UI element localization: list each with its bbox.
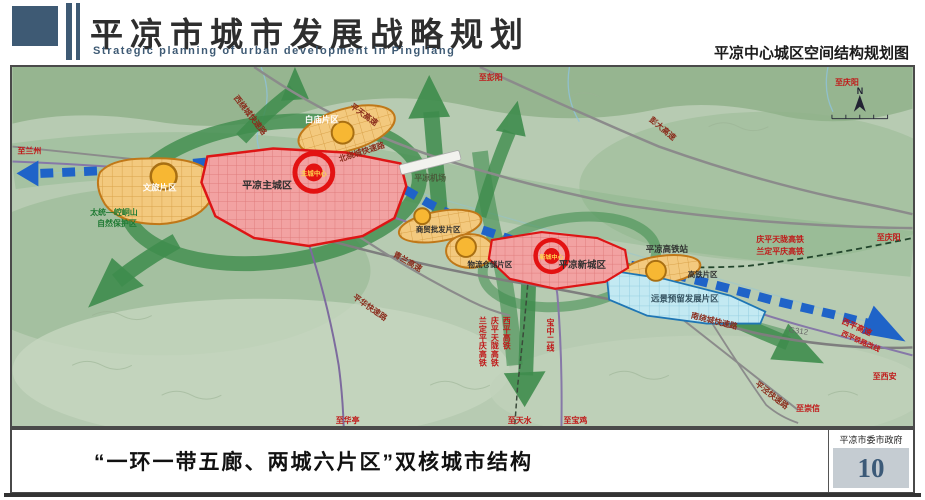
slide-caption: “一环一带五廊、两城六片区”双核城市结构 [12, 430, 828, 492]
figure-title: 平凉中心城区空间结构规划图 [714, 42, 909, 63]
nature-reserve-label-2: 自然保护区 [97, 218, 137, 228]
wenlv-label: 文旅片区 [143, 182, 177, 192]
page-number: 10 [833, 448, 909, 488]
baimiao-center-icon [332, 122, 354, 144]
shangmao-center-icon [414, 208, 430, 224]
dest-huating-label: 至华亭 [336, 415, 360, 425]
rail-xiping-hsr-label: 西平高铁 [503, 317, 511, 351]
compass-n-label: N [857, 86, 863, 96]
rail-qptl-label: 庆平天陇高铁 [755, 234, 804, 244]
dest-baoji-label: 至宝鸡 [563, 415, 587, 425]
airport-label: 平凉机场 [414, 172, 446, 182]
gaotie-label: 高铁片区 [688, 269, 718, 279]
dest-lanzhou-label: 至兰州 [18, 146, 42, 156]
shangmao-label: 商贸批发片区 [416, 224, 461, 234]
gaotie-center-icon [646, 261, 666, 281]
new-core-label: 新城中心 [540, 253, 564, 261]
header-accent-bar [66, 3, 72, 60]
bottom-rule [4, 493, 921, 497]
page-subtitle: Strategic planning of urban development … [93, 45, 456, 57]
gov-name-label: 平凉市委市政府 [829, 430, 913, 448]
wuliu-label: 物流仓储片区 [468, 259, 513, 269]
header-logo-square [12, 6, 58, 46]
map-svg: N 文旅片区 白庙片区 平凉主城区 主城中心 商贸批发片区 物流仓储片区 平凉新… [12, 67, 913, 426]
rail-ldpq-label: 兰定平庆高铁 [756, 246, 804, 256]
yuanjing-label: 远景预留发展片区 [651, 294, 719, 304]
footer-bar: “一环一带五廊、两城六片区”双核城市结构 平凉市委市政府 10 [10, 428, 915, 494]
dest-pengyang-label: 至彭阳 [479, 72, 503, 82]
rail-baozhong2-label: 宝中二线 [547, 318, 555, 353]
gov-page-box: 平凉市委市政府 10 [828, 430, 913, 492]
dest-qingyang-right-label: 至庆阳 [877, 232, 901, 242]
planning-slide: 平凉市城市发展战略规划 Strategic planning of urban … [0, 0, 925, 500]
dest-tianshui-label: 至天水 [508, 415, 533, 425]
dest-xian-label: 至西安 [873, 371, 897, 381]
main-core-label: 主城中心 [301, 168, 327, 177]
wuliu-center-icon [456, 237, 476, 257]
rail-qptl-vertical-label: 庆平天陇高铁 [490, 316, 499, 368]
hsr-station-label: 平凉高铁站 [646, 244, 689, 254]
dest-qingyang-top-label: 至庆阳 [835, 77, 859, 87]
main-city-label: 平凉主城区 [242, 178, 292, 191]
planning-map: N 文旅片区 白庙片区 平凉主城区 主城中心 商贸批发片区 物流仓储片区 平凉新… [10, 65, 915, 428]
header-accent-bar [76, 3, 80, 60]
baimiao-label: 白庙片区 [305, 115, 339, 125]
new-city-label: 平凉新城区 [559, 259, 607, 271]
nature-reserve-label-1: 太统—崆峒山 [90, 207, 138, 217]
dest-chongxin-label: 至崇信 [796, 403, 820, 413]
rail-ldpq-vertical-label: 兰定平庆高铁 [478, 316, 487, 368]
